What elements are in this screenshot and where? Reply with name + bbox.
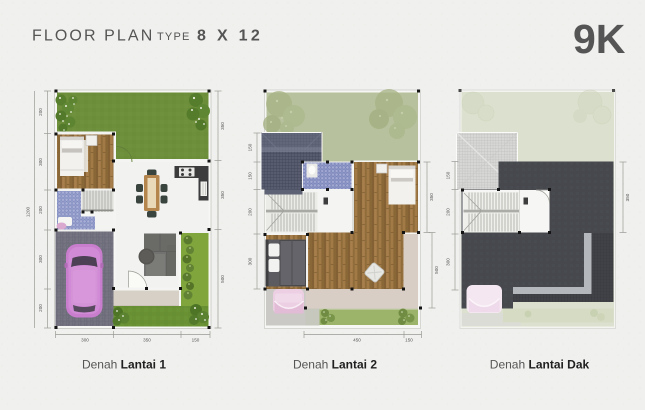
- svg-text:200: 200: [248, 208, 253, 216]
- svg-text:FLOOR PLAN: FLOOR PLAN: [32, 28, 154, 45]
- svg-text:TYPE: TYPE: [157, 31, 191, 43]
- svg-text:500: 500: [220, 275, 225, 283]
- svg-text:1200: 1200: [26, 206, 31, 217]
- svg-text:150: 150: [248, 143, 253, 151]
- svg-text:300: 300: [81, 338, 89, 343]
- svg-text:300: 300: [38, 255, 43, 263]
- svg-text:300: 300: [38, 158, 43, 166]
- svg-text:300: 300: [248, 257, 253, 265]
- svg-text:200: 200: [38, 108, 43, 116]
- svg-text:150: 150: [446, 171, 451, 179]
- svg-text:Denah Lantai 2: Denah Lantai 2: [293, 358, 377, 372]
- svg-text:200: 200: [38, 206, 43, 214]
- svg-text:9K: 9K: [573, 16, 626, 62]
- svg-text:Denah Lantai Dak: Denah Lantai Dak: [490, 358, 590, 372]
- svg-text:300: 300: [446, 258, 451, 266]
- svg-text:150: 150: [405, 338, 413, 343]
- svg-text:200: 200: [38, 304, 43, 312]
- svg-text:450: 450: [353, 338, 361, 343]
- svg-text:150: 150: [248, 172, 253, 180]
- svg-text:350: 350: [429, 193, 434, 201]
- svg-text:350: 350: [220, 191, 225, 199]
- svg-text:500: 500: [434, 266, 439, 274]
- svg-text:350: 350: [625, 193, 630, 201]
- svg-text:150: 150: [192, 338, 200, 343]
- svg-text:8 X 12: 8 X 12: [197, 28, 263, 45]
- svg-text:Denah Lantai 1: Denah Lantai 1: [82, 358, 166, 372]
- svg-text:350: 350: [143, 338, 151, 343]
- svg-text:350: 350: [220, 122, 225, 130]
- svg-text:200: 200: [446, 208, 451, 216]
